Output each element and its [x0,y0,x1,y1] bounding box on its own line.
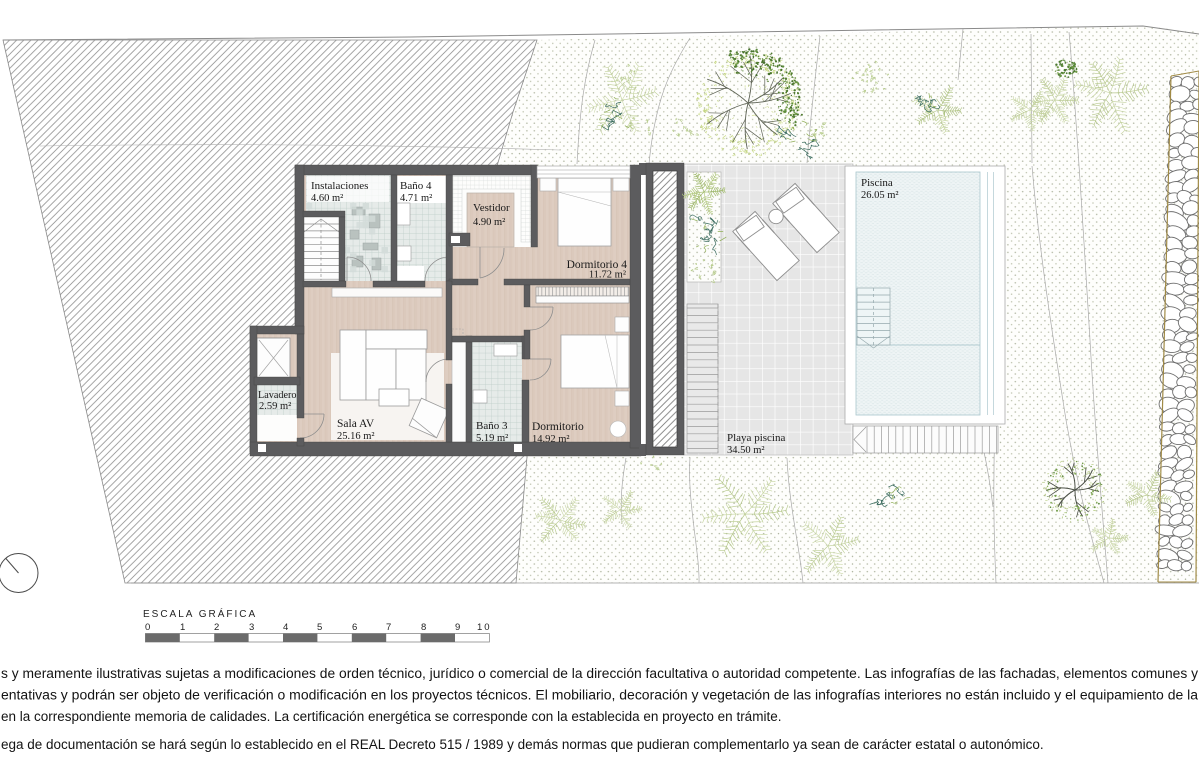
svg-text:4.60 m²: 4.60 m² [311,193,343,204]
svg-text:Vestidor: Vestidor [473,202,510,214]
svg-text:Sala AV: Sala AV [337,418,375,430]
svg-text:Dormitorio: Dormitorio [532,421,584,433]
svg-text:5: 5 [317,622,322,633]
svg-text:s y meramente ilustrativas suj: s y meramente ilustrativas sujetas a mod… [1,666,1198,681]
svg-text:6: 6 [352,622,357,633]
svg-text:en la correspondiente memoria: en la correspondiente memoria de calidad… [1,709,781,724]
svg-text:Playa piscina: Playa piscina [727,432,785,444]
svg-text:ega de documentación se hará s: ega de documentación se hará según lo es… [1,737,1044,752]
svg-text:7: 7 [386,622,391,633]
svg-text:8: 8 [421,622,426,633]
svg-text:25.16 m²: 25.16 m² [337,431,375,442]
svg-text:Instalaciones: Instalaciones [311,180,368,192]
svg-text:11.72 m²: 11.72 m² [589,270,626,281]
svg-text:4: 4 [283,622,288,633]
svg-text:2.59 m²: 2.59 m² [259,401,291,412]
svg-text:Baño 3: Baño 3 [476,420,508,432]
svg-text:Baño 4: Baño 4 [400,180,432,192]
svg-text:2: 2 [214,622,219,633]
svg-text:Lavadero: Lavadero [258,390,296,401]
svg-text:4.90 m²: 4.90 m² [473,217,505,228]
svg-text:9: 9 [455,622,460,633]
svg-text:14.92 m²: 14.92 m² [532,434,570,445]
svg-text:4.71 m²: 4.71 m² [400,193,432,204]
svg-text:34.50 m²: 34.50 m² [727,445,765,456]
svg-text:26.05 m²: 26.05 m² [861,190,899,201]
svg-text:3: 3 [249,622,254,633]
svg-text:ESCALA GRÁFICA: ESCALA GRÁFICA [143,607,257,620]
svg-text:0: 0 [145,622,150,633]
svg-text:entativas y podrán ser objeto: entativas y podrán ser objeto de verific… [1,688,1199,703]
svg-text:10: 10 [477,622,492,633]
svg-text:1: 1 [180,622,185,633]
svg-text:Piscina: Piscina [861,177,893,189]
svg-text:5.19 m²: 5.19 m² [476,433,508,444]
